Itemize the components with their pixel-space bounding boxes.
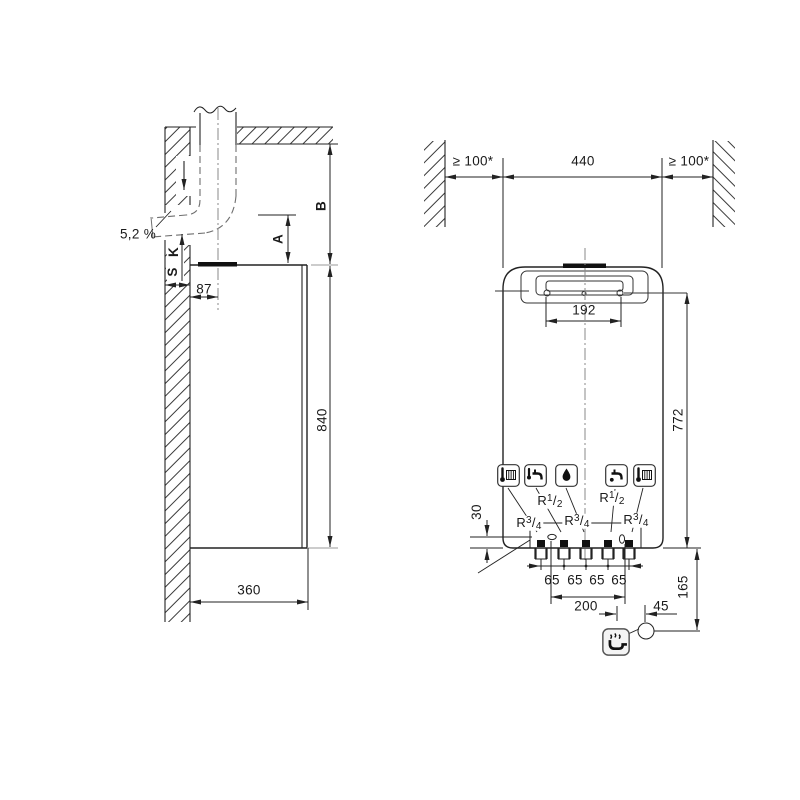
dim-65-label-4: 65 [611, 573, 627, 588]
front-view-top-dimensions [445, 158, 713, 268]
dim-65-label-1: 65 [544, 573, 560, 588]
boiler-side-outline [190, 262, 307, 548]
diagram-linework [0, 0, 800, 800]
flue-pipe [151, 106, 236, 310]
radiator-thermometer-icon [633, 464, 656, 492]
dim-772-label: 772 [671, 408, 686, 431]
boiler-installation-diagram: 5,2 % B A K S 87 840 360 ≥ 100* 440 ≥ 10… [0, 0, 800, 800]
siphon-icon [602, 628, 630, 661]
thread-label-heating-flow: R3/4 [514, 516, 543, 531]
tap-thermometer-icon [524, 464, 547, 492]
thread-label-gas: R3/4 [562, 514, 591, 529]
gas-drop-icon [555, 464, 578, 492]
dim-S-label: S [166, 265, 180, 278]
thread-label-heating-return: R3/4 [621, 513, 650, 528]
dim-192-label: 192 [572, 303, 595, 318]
dim-840-label: 840 [315, 408, 330, 431]
dim-B-label: B [314, 201, 329, 211]
dim-87-label: 87 [196, 282, 212, 297]
dim-A-label: A [271, 234, 286, 244]
dim-165-label: 165 [676, 575, 691, 598]
dim-65-label-2: 65 [567, 573, 583, 588]
clearance-right-label: ≥ 100* [669, 154, 710, 169]
dim-360-label: 360 [237, 583, 260, 598]
dim-440-label: 440 [571, 154, 594, 169]
dim-30-label: 30 [470, 502, 484, 522]
thread-label-hot-water: R1/2 [535, 494, 564, 509]
dim-65-label-3: 65 [589, 573, 605, 588]
dim-200-label: 200 [574, 599, 597, 614]
thread-label-cold-water: R1/2 [597, 491, 626, 506]
mounting-bracket [495, 271, 687, 303]
dim-K-label: K [167, 245, 181, 259]
clearance-left-label: ≥ 100* [453, 154, 494, 169]
tap-drop-icon [605, 464, 628, 492]
dim-45-label: 45 [653, 599, 669, 614]
side-view-dimensions [165, 144, 338, 610]
slope-label: 5,2 % [120, 227, 156, 242]
radiator-thermometer-icon [497, 464, 520, 492]
